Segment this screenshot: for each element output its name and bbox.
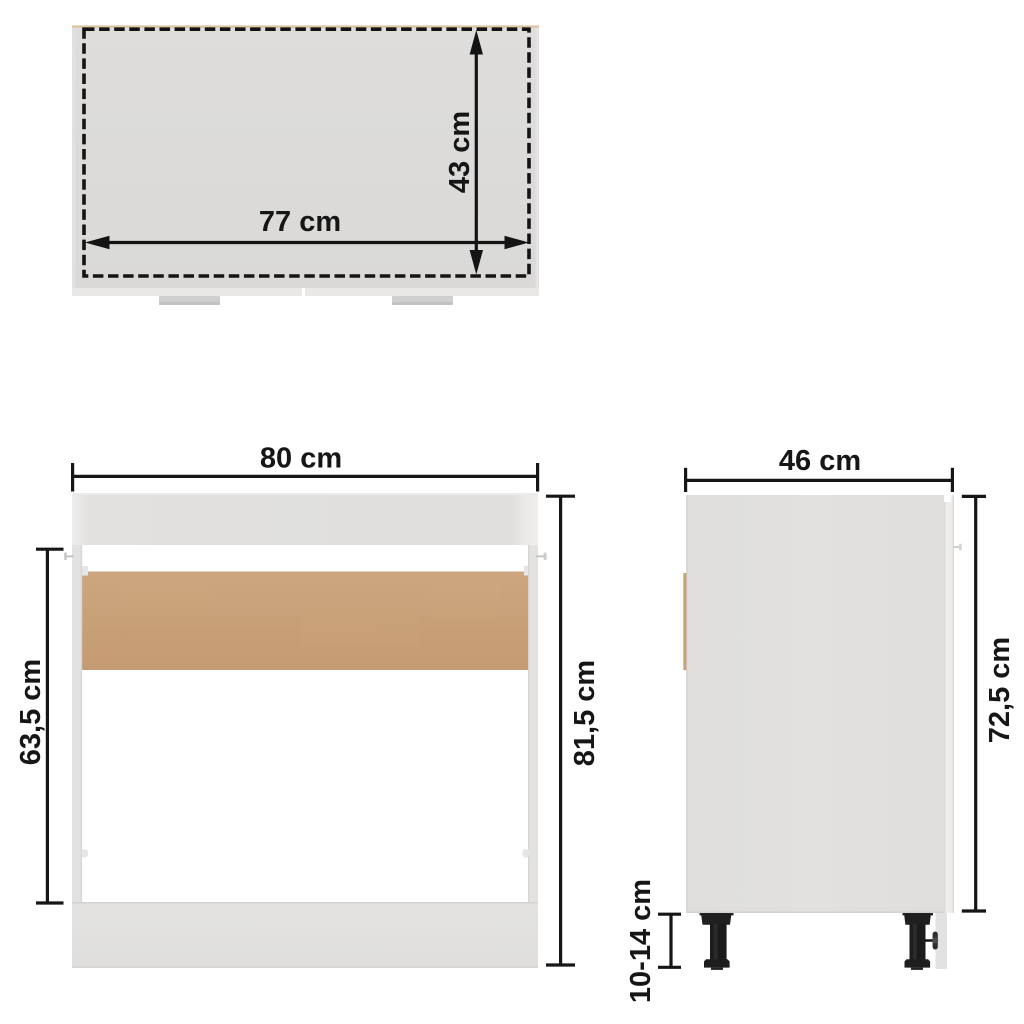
svg-text:10-14 cm: 10-14 cm xyxy=(625,879,657,1003)
svg-text:46 cm: 46 cm xyxy=(779,445,861,477)
svg-text:43 cm: 43 cm xyxy=(444,111,476,193)
svg-text:72,5 cm: 72,5 cm xyxy=(984,637,1016,743)
svg-text:63,5 cm: 63,5 cm xyxy=(15,659,47,765)
svg-text:81,5 cm: 81,5 cm xyxy=(569,660,601,766)
svg-text:77 cm: 77 cm xyxy=(259,206,341,238)
svg-text:80 cm: 80 cm xyxy=(260,443,342,475)
